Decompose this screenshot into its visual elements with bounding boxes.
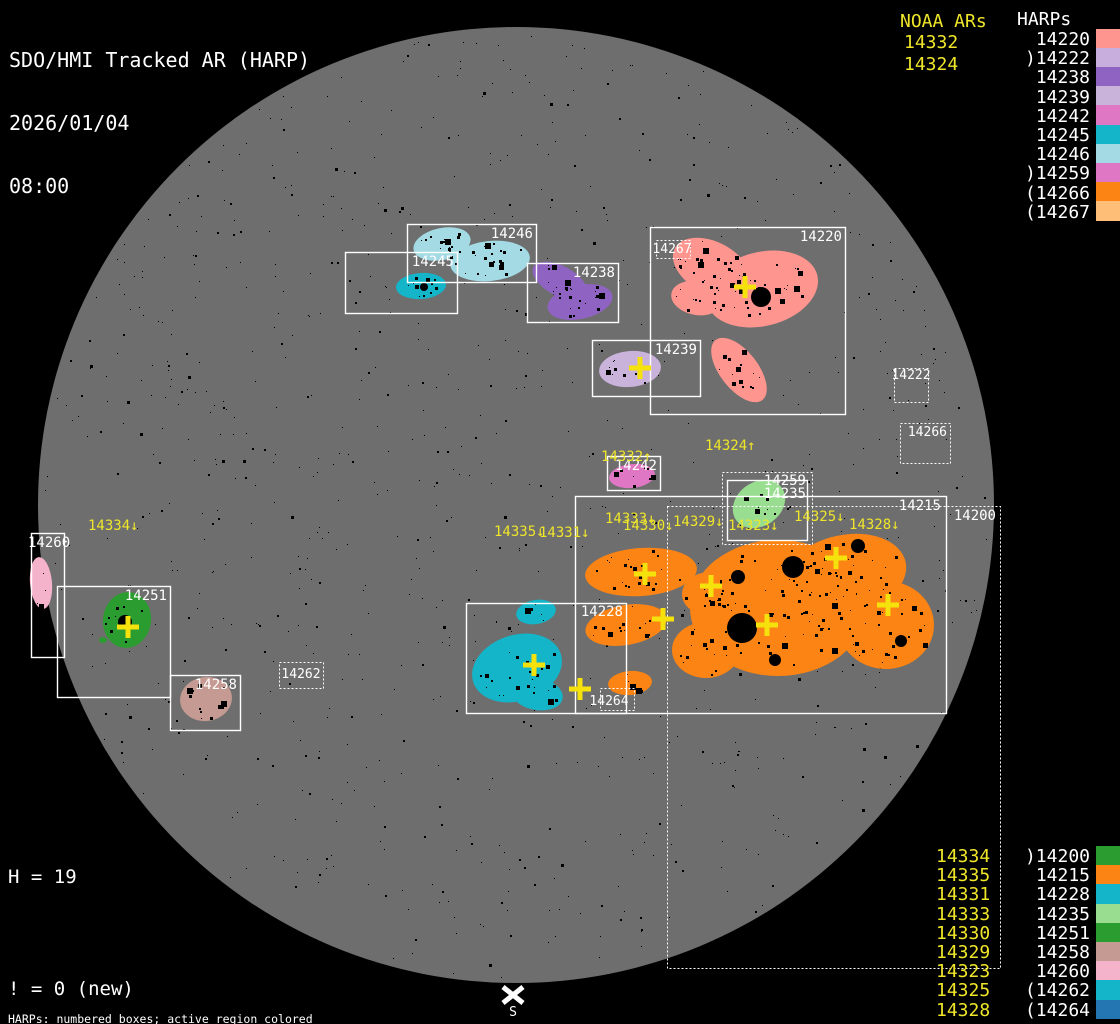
- disk-speckle: [696, 708, 697, 709]
- region-speckle: [912, 606, 917, 611]
- disk-speckle: [879, 439, 880, 440]
- region-speckle: [543, 620, 544, 621]
- disk-speckle: [572, 726, 574, 728]
- disk-speckle: [252, 448, 254, 450]
- disk-speckle: [332, 799, 333, 800]
- disk-speckle: [124, 294, 125, 295]
- region-speckle: [505, 273, 508, 276]
- region-speckle: [711, 674, 713, 676]
- region-speckle: [722, 590, 724, 592]
- region-speckle: [459, 251, 461, 253]
- region-speckle: [809, 566, 810, 567]
- region-speckle: [843, 596, 844, 597]
- disk-speckle: [684, 610, 685, 611]
- region-speckle: [856, 593, 857, 594]
- disk-speckle: [713, 508, 714, 509]
- disk-speckle: [305, 755, 307, 757]
- disk-speckle: [342, 230, 343, 231]
- region-speckle: [516, 686, 520, 690]
- disk-speckle: [783, 758, 784, 759]
- disk-speckle: [984, 497, 986, 499]
- disk-speckle: [865, 723, 867, 725]
- footer-notes: HARPs: numbered boxes; active region col…: [8, 987, 410, 1024]
- region-speckle: [125, 641, 127, 643]
- disk-speckle: [730, 493, 731, 494]
- disk-speckle: [551, 199, 553, 201]
- disk-speckle: [255, 381, 256, 382]
- disk-speckle: [568, 431, 569, 432]
- disk-speckle: [161, 510, 163, 512]
- disk-speckle: [171, 334, 172, 335]
- harp-box-label-14235: 14235: [764, 486, 806, 502]
- disk-speckle: [542, 370, 543, 371]
- disk-speckle: [762, 905, 763, 906]
- disk-speckle: [259, 625, 261, 627]
- noaa-ar-item-14334: 14334: [936, 847, 990, 866]
- disk-speckle: [555, 141, 556, 142]
- disk-speckle: [639, 150, 640, 151]
- disk-speckle: [162, 428, 163, 429]
- region-speckle: [704, 280, 705, 281]
- disk-speckle: [561, 864, 564, 867]
- disk-speckle: [454, 917, 455, 918]
- region-speckle: [767, 509, 768, 510]
- disk-speckle: [838, 372, 839, 373]
- disk-speckle: [476, 570, 477, 571]
- disk-speckle: [338, 500, 339, 501]
- disk-speckle: [566, 56, 567, 57]
- disk-speckle: [319, 582, 321, 584]
- disk-speckle: [646, 227, 647, 228]
- disk-speckle: [208, 474, 210, 476]
- region-speckle: [862, 650, 865, 653]
- disk-speckle: [359, 331, 360, 332]
- disk-speckle: [388, 451, 389, 452]
- disk-speckle: [605, 507, 606, 508]
- disk-speckle: [385, 895, 387, 897]
- region-speckle: [715, 308, 716, 309]
- region-speckle: [704, 605, 706, 607]
- disk-speckle: [313, 476, 314, 477]
- disk-speckle: [337, 262, 339, 264]
- disk-speckle: [470, 836, 471, 837]
- disk-speckle: [401, 207, 404, 210]
- disk-speckle: [297, 872, 298, 873]
- region-speckle: [835, 572, 837, 574]
- region-speckle: [630, 684, 636, 690]
- disk-speckle: [939, 380, 940, 381]
- disk-speckle: [895, 300, 896, 301]
- disk-speckle: [505, 420, 507, 422]
- region-speckle: [878, 624, 880, 626]
- region-speckle: [781, 590, 784, 593]
- region-speckle: [607, 560, 608, 561]
- sunspot-core: [727, 613, 757, 643]
- disk-speckle: [939, 578, 940, 579]
- region-speckle: [477, 273, 479, 275]
- disk-speckle: [505, 309, 506, 310]
- disk-speckle: [890, 242, 891, 243]
- region-speckle: [687, 309, 690, 312]
- disk-speckle: [199, 281, 200, 282]
- disk-speckle: [273, 661, 274, 662]
- harp-box-label-14238: 14238: [573, 265, 615, 281]
- disk-speckle: [386, 287, 387, 288]
- disk-speckle: [641, 324, 642, 325]
- region-speckle: [850, 610, 851, 611]
- disk-speckle: [962, 476, 963, 477]
- region-speckle: [37, 603, 38, 604]
- disk-speckle: [474, 615, 475, 616]
- region-speckle: [700, 259, 703, 262]
- disk-speckle: [737, 754, 739, 756]
- disk-speckle: [727, 891, 728, 892]
- disk-speckle: [669, 742, 670, 743]
- region-speckle: [635, 373, 637, 375]
- disk-speckle: [519, 550, 520, 551]
- disk-speckle: [671, 844, 672, 845]
- disk-speckle: [423, 410, 424, 411]
- harp-color-swatch: [1096, 846, 1120, 865]
- disk-speckle: [183, 774, 184, 775]
- disk-speckle: [576, 211, 577, 212]
- region-speckle: [725, 646, 727, 648]
- disk-speckle: [721, 867, 722, 868]
- disk-speckle: [47, 476, 48, 477]
- region-speckle: [686, 656, 689, 659]
- region-speckle: [797, 268, 799, 270]
- disk-speckle: [223, 407, 225, 409]
- region-speckle: [457, 236, 460, 239]
- disk-speckle: [121, 752, 123, 754]
- disk-speckle: [327, 717, 328, 718]
- disk-speckle: [704, 690, 705, 691]
- disk-speckle: [305, 569, 306, 570]
- disk-speckle: [144, 246, 145, 247]
- disk-speckle: [319, 527, 320, 528]
- disk-speckle: [516, 388, 517, 389]
- disk-speckle: [419, 568, 420, 569]
- region-speckle: [706, 648, 708, 650]
- region-speckle: [812, 614, 813, 615]
- region-speckle: [720, 309, 722, 311]
- disk-speckle: [152, 749, 153, 750]
- disk-speckle: [510, 935, 512, 937]
- region-speckle: [789, 579, 790, 580]
- region-speckle: [639, 627, 641, 629]
- disk-speckle: [422, 382, 424, 384]
- disk-speckle: [919, 423, 920, 424]
- region-speckle: [636, 688, 642, 694]
- region-speckle: [638, 582, 641, 585]
- region-speckle: [739, 380, 743, 384]
- disk-speckle: [92, 634, 93, 635]
- region-speckle: [729, 579, 731, 581]
- disk-speckle: [641, 929, 643, 931]
- disk-speckle: [702, 751, 704, 753]
- disk-speckle: [428, 44, 430, 46]
- disk-speckle: [581, 229, 583, 231]
- harp-item-14239: 14239: [1000, 88, 1090, 107]
- region-speckle: [820, 649, 823, 652]
- disk-speckle: [448, 374, 449, 375]
- disk-speckle: [715, 546, 716, 547]
- region-speckle: [842, 543, 845, 546]
- region-speckle: [618, 475, 619, 476]
- region-speckle: [475, 255, 476, 256]
- disk-speckle: [787, 508, 789, 510]
- disk-speckle: [849, 193, 850, 194]
- disk-speckle: [644, 842, 645, 843]
- disk-speckle: [900, 776, 901, 777]
- region-speckle: [503, 695, 504, 696]
- disk-speckle: [436, 505, 437, 506]
- region-speckle: [693, 272, 695, 274]
- disk-speckle: [624, 911, 625, 912]
- disk-speckle: [318, 458, 319, 459]
- disk-speckle: [853, 357, 855, 359]
- disk-speckle: [458, 135, 459, 136]
- region-speckle: [491, 253, 493, 255]
- region-speckle: [486, 687, 487, 688]
- disk-speckle: [162, 322, 163, 323]
- disk-speckle: [880, 351, 881, 352]
- harp-box-label-14245: 14245: [412, 254, 454, 270]
- region-speckle: [693, 299, 694, 300]
- region-speckle: [702, 281, 704, 283]
- region-speckle: [620, 630, 622, 632]
- disk-speckle: [659, 823, 661, 825]
- region-speckle: [703, 248, 709, 254]
- region-speckle: [851, 555, 854, 558]
- disk-speckle: [403, 740, 405, 742]
- region-speckle: [565, 280, 571, 286]
- disk-speckle: [295, 819, 296, 820]
- disk-speckle: [815, 734, 816, 735]
- disk-speckle: [739, 751, 740, 752]
- disk-speckle: [504, 852, 505, 853]
- region-speckle: [548, 265, 549, 266]
- disk-speckle: [934, 526, 935, 527]
- noaa-ars-heading: NOAA ARs: [900, 12, 987, 31]
- disk-speckle: [693, 164, 695, 166]
- region-speckle: [728, 358, 731, 361]
- disk-speckle: [90, 365, 93, 368]
- disk-speckle: [531, 36, 532, 37]
- disk-speckle: [430, 537, 431, 538]
- disk-speckle: [199, 362, 200, 363]
- region-speckle: [723, 355, 727, 359]
- region-speckle: [516, 656, 519, 659]
- disk-speckle: [468, 599, 470, 601]
- region-speckle: [485, 275, 486, 276]
- harp-item-14260: 14260: [1000, 962, 1090, 981]
- disk-speckle: [534, 884, 536, 886]
- disk-speckle: [772, 885, 774, 887]
- disk-speckle: [521, 135, 522, 136]
- title-block: SDO/HMI Tracked AR (HARP) 2026/01/04 08:…: [9, 8, 310, 239]
- region-speckle: [423, 295, 425, 297]
- disk-speckle: [252, 351, 253, 352]
- sunspot-core: [782, 556, 804, 578]
- disk-speckle: [893, 410, 894, 411]
- region-speckle: [713, 275, 716, 278]
- region-speckle: [811, 592, 812, 593]
- region-speckle: [861, 578, 862, 579]
- disk-speckle: [868, 293, 870, 295]
- disk-speckle: [706, 548, 708, 550]
- disk-speckle: [55, 563, 56, 564]
- region-speckle: [509, 652, 510, 653]
- disk-speckle: [550, 103, 553, 106]
- disk-speckle: [418, 42, 419, 43]
- disk-speckle: [809, 372, 810, 373]
- disk-speckle: [897, 456, 898, 457]
- disk-speckle: [659, 638, 660, 639]
- region-speckle: [499, 695, 500, 696]
- disk-speckle: [508, 627, 511, 630]
- disk-speckle: [378, 203, 379, 204]
- region-speckle: [527, 685, 530, 688]
- region-speckle: [500, 250, 502, 252]
- harp-box-label-14264: 14264: [589, 694, 628, 709]
- disk-speckle: [712, 340, 713, 341]
- disk-speckle: [309, 793, 311, 795]
- disk-speckle: [143, 315, 144, 316]
- disk-speckle: [351, 634, 352, 635]
- region-speckle: [872, 649, 873, 650]
- disk-speckle: [66, 405, 67, 406]
- disk-speckle: [401, 773, 402, 774]
- region-speckle: [720, 278, 721, 279]
- disk-speckle: [499, 845, 500, 846]
- disk-speckle: [492, 778, 493, 779]
- disk-speckle: [123, 334, 125, 336]
- disk-speckle: [850, 232, 851, 233]
- disk-speckle: [620, 834, 621, 835]
- region-speckle: [715, 670, 717, 672]
- region-speckle: [742, 386, 744, 388]
- region-speckle: [730, 262, 732, 264]
- disk-speckle: [862, 781, 864, 783]
- region-speckle: [421, 240, 422, 241]
- disk-speckle: [355, 302, 357, 304]
- disk-speckle: [890, 260, 892, 262]
- disk-speckle: [421, 127, 422, 128]
- region-speckle: [655, 583, 657, 585]
- disk-speckle: [199, 593, 200, 594]
- disk-speckle: [81, 395, 83, 397]
- disk-speckle: [272, 765, 274, 767]
- disk-speckle: [916, 286, 917, 287]
- disk-speckle: [220, 434, 221, 435]
- disk-speckle: [830, 165, 832, 167]
- disk-speckle: [820, 182, 822, 184]
- disk-speckle: [129, 651, 130, 652]
- time-label: 08:00: [9, 176, 310, 197]
- disk-speckle: [183, 681, 184, 682]
- region-speckle: [699, 300, 701, 302]
- disk-speckle: [681, 614, 684, 617]
- disk-speckle: [336, 821, 337, 822]
- disk-speckle: [986, 539, 987, 540]
- region-speckle: [493, 243, 495, 245]
- disk-speckle: [758, 768, 759, 769]
- disk-speckle: [389, 299, 390, 300]
- disk-speckle: [299, 588, 300, 589]
- region-speckle: [872, 560, 873, 561]
- south-pole-x-marker: [503, 987, 523, 1003]
- disk-speckle: [293, 721, 294, 722]
- region-speckle: [548, 268, 550, 270]
- disk-speckle: [181, 391, 183, 393]
- disk-speckle: [471, 843, 473, 845]
- disk-speckle: [449, 637, 450, 638]
- disk-speckle: [898, 537, 899, 538]
- disk-speckle: [454, 176, 455, 177]
- disk-speckle: [436, 387, 437, 388]
- disk-speckle: [366, 767, 367, 768]
- region-speckle: [595, 297, 596, 298]
- disk-speckle: [416, 558, 417, 559]
- region-speckle: [815, 634, 818, 637]
- region-speckle: [849, 628, 851, 630]
- disk-speckle: [442, 891, 444, 893]
- disk-speckle: [783, 522, 784, 523]
- disk-speckle: [903, 310, 904, 311]
- disk-speckle: [859, 297, 860, 298]
- disk-speckle: [438, 765, 439, 766]
- region-speckle: [791, 550, 793, 552]
- region-speckle: [628, 681, 629, 682]
- disk-speckle: [384, 781, 385, 782]
- disk-speckle: [246, 868, 247, 869]
- region-speckle: [717, 258, 720, 261]
- harp-color-swatch: [1096, 144, 1120, 163]
- region-speckle: [755, 509, 760, 514]
- region-speckle: [624, 630, 625, 631]
- region-speckle: [848, 559, 849, 560]
- noaa-ar-item-14325: 14325: [936, 981, 990, 1000]
- disk-speckle: [264, 449, 266, 451]
- sunspot-core: [731, 570, 745, 584]
- disk-speckle: [863, 409, 864, 410]
- region-speckle: [696, 258, 699, 261]
- disk-speckle: [223, 618, 224, 619]
- harp-item-14215: 14215: [1000, 866, 1090, 885]
- region-speckle: [210, 717, 213, 720]
- disk-speckle: [121, 741, 123, 743]
- disk-speckle: [548, 942, 549, 943]
- disk-speckle: [359, 399, 360, 400]
- region-speckle: [720, 580, 722, 582]
- disk-speckle: [307, 558, 308, 559]
- disk-speckle: [299, 467, 300, 468]
- disk-speckle: [168, 365, 170, 367]
- region-speckle: [685, 597, 688, 600]
- disk-speckle: [394, 689, 395, 690]
- noaa-ar-label-14332: 14332↑: [601, 449, 652, 465]
- disk-speckle: [974, 600, 975, 601]
- region-speckle: [716, 287, 718, 289]
- disk-speckle: [798, 678, 801, 681]
- disk-speckle: [227, 736, 228, 737]
- disk-speckle: [529, 82, 530, 83]
- region-speckle: [430, 292, 432, 294]
- region-speckle: [499, 260, 502, 263]
- disk-speckle: [622, 428, 623, 429]
- disk-speckle: [890, 784, 891, 785]
